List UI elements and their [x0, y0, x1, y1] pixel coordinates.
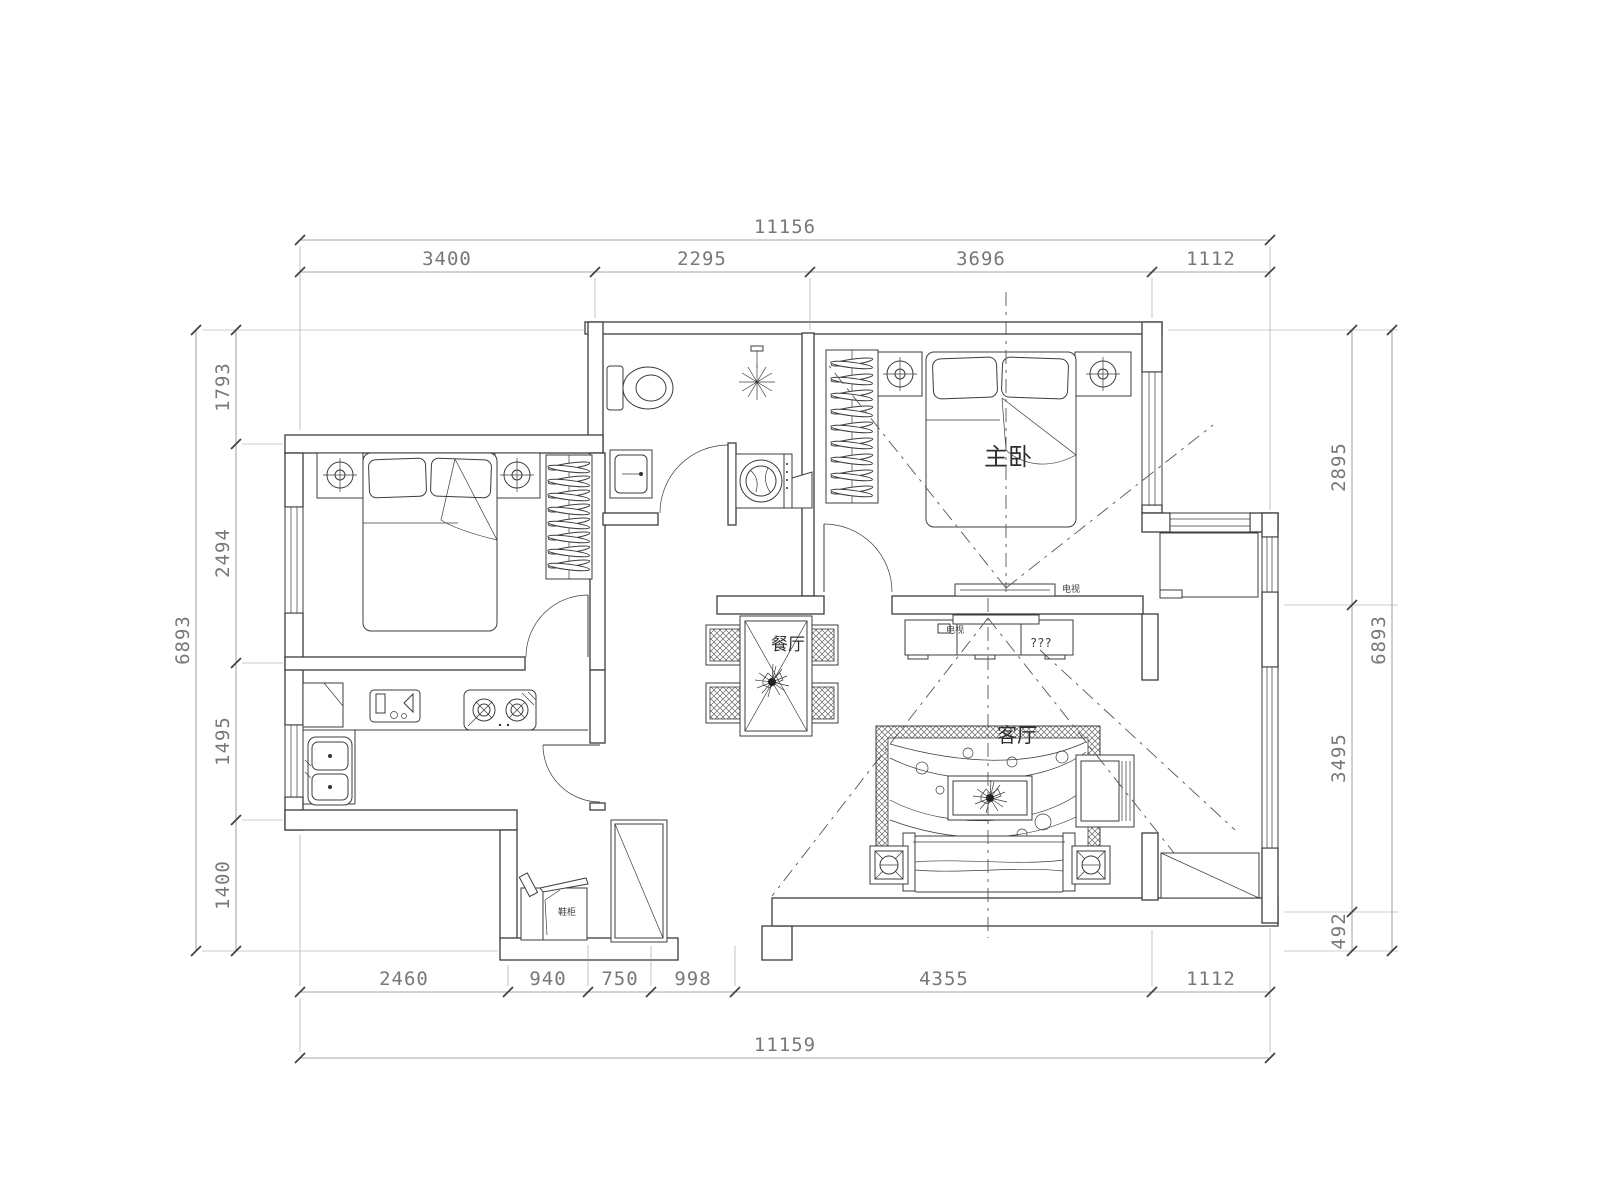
door-bedroom2 [526, 595, 588, 657]
dim-bottom-seg: 2460 [379, 968, 429, 990]
door-master [824, 524, 892, 592]
room-label-master: 主卧 [984, 443, 1032, 471]
balcony-unit [1161, 853, 1259, 898]
bedroom2 [317, 453, 592, 631]
shoe-cabinet: 鞋柜 [519, 873, 588, 940]
dim-left-seg: 1495 [212, 716, 234, 766]
tv-cabinet: 电视 ??? [905, 615, 1073, 659]
shoe-cabinet-label: 鞋柜 [558, 906, 576, 918]
dim-left-seg: 2494 [212, 528, 234, 578]
kitchen [303, 683, 588, 805]
room-label-living: 客厅 [997, 723, 1037, 747]
wardrobe [546, 455, 592, 579]
room-label-dining: 餐厅 [771, 635, 805, 655]
side-table [1072, 846, 1110, 884]
tv-label: 电视 [1062, 583, 1080, 595]
dim-bottom-seg: 750 [601, 968, 638, 990]
floor-plan-drawing: 主卧 电视 [0, 0, 1600, 1200]
window-bedroom2 [285, 507, 303, 613]
dim-bottom-seg: 998 [674, 968, 711, 990]
wall-tv: 电视 [955, 583, 1080, 596]
tv-label: 电视 [946, 624, 964, 636]
dim-top-total: 11156 [754, 216, 816, 238]
small-appliance [370, 690, 420, 722]
kitchen-sink [305, 737, 352, 805]
balcony-cabinet [1160, 533, 1258, 598]
bathroom [607, 346, 812, 508]
hall-cabinet [611, 820, 667, 942]
stove [464, 690, 536, 730]
ceiling-light-icon [739, 346, 775, 400]
dim-top-seg: 3696 [956, 248, 1006, 270]
dim-right-seg: 3495 [1328, 733, 1350, 783]
dim-right-seg: 492 [1328, 912, 1350, 949]
side-table [870, 846, 908, 884]
balcony [1160, 533, 1259, 898]
washing-machine [736, 454, 812, 508]
dim-left-total: 6893 [172, 615, 194, 665]
toilet [607, 366, 673, 410]
dim-bottom-seg: 4355 [919, 968, 969, 990]
dining-room: 餐厅 [706, 616, 838, 736]
dim-top-seg: 3400 [422, 248, 472, 270]
window-balcony-right-lower [1262, 667, 1278, 848]
armchair [1076, 755, 1134, 827]
bed [363, 453, 497, 631]
window-balcony-right-upper [1262, 537, 1278, 592]
bed [926, 352, 1076, 527]
door-bathroom [660, 445, 728, 513]
window-balcony-top [1170, 513, 1250, 532]
dim-top-seg: 2295 [677, 248, 727, 270]
tv-cabinet-label: ??? [1030, 636, 1052, 650]
wardrobe [826, 350, 878, 503]
sofa [903, 833, 1075, 892]
fridge [303, 683, 343, 727]
dim-right-seg: 2895 [1328, 442, 1350, 492]
dim-bottom-seg: 1112 [1186, 968, 1236, 990]
dim-bottom-seg: 940 [529, 968, 566, 990]
dining-chair [706, 683, 744, 723]
dim-bottom-total: 11159 [754, 1034, 816, 1056]
door-kitchen [543, 745, 600, 802]
dim-left-seg: 1793 [212, 362, 234, 412]
window-master [1142, 372, 1162, 505]
sink-vanity [610, 450, 652, 498]
dim-top-seg: 1112 [1186, 248, 1236, 270]
entry: 鞋柜 [519, 820, 667, 942]
dim-right-total: 6893 [1368, 615, 1390, 665]
floor-plan-page: 主卧 电视 [0, 0, 1600, 1200]
window-kitchen [285, 725, 303, 797]
dim-left-seg: 1400 [212, 860, 234, 910]
dining-chair [706, 625, 744, 665]
dimensions-left: 6893 1793 2494 1495 1400 [172, 325, 585, 956]
